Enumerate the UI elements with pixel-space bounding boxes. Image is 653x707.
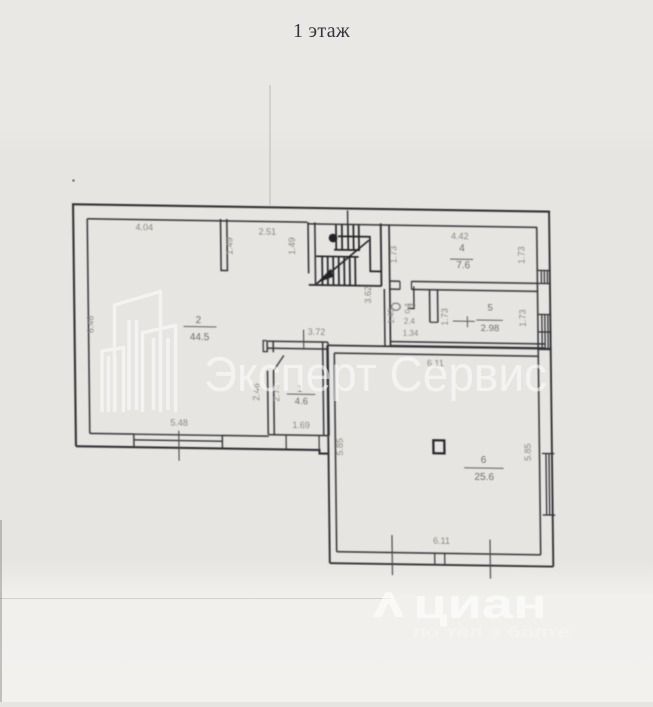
svg-text:4.04: 4.04: [135, 222, 153, 232]
svg-text:циан: циан: [413, 580, 547, 627]
svg-text:6.11: 6.11: [433, 536, 450, 546]
svg-text:1.49: 1.49: [224, 237, 234, 255]
svg-text:1.73: 1.73: [388, 246, 398, 264]
svg-text:по тел з болте: по тел з болте: [413, 624, 571, 641]
svg-text:2.51: 2.51: [259, 227, 277, 237]
svg-text:1.49: 1.49: [287, 237, 297, 255]
svg-text:5: 5: [488, 303, 493, 314]
svg-text:25.6: 25.6: [474, 472, 494, 483]
svg-text:2.98: 2.98: [481, 323, 500, 334]
svg-text:1.73: 1.73: [518, 309, 528, 327]
svg-text:4: 4: [459, 243, 465, 254]
svg-text:1.73: 1.73: [516, 246, 526, 264]
svg-text:2.4: 2.4: [404, 317, 416, 326]
svg-text:6.46: 6.46: [85, 316, 95, 334]
svg-text:1.73: 1.73: [440, 308, 450, 326]
svg-text:3.72: 3.72: [308, 327, 326, 337]
svg-text:5.85: 5.85: [523, 443, 533, 461]
svg-text:4.42: 4.42: [451, 231, 469, 241]
svg-text:1.69: 1.69: [292, 420, 310, 430]
svg-text:7.6: 7.6: [456, 260, 470, 271]
svg-text:Эксперт Сервис: Эксперт Сервис: [204, 348, 547, 402]
svg-text:2: 2: [196, 315, 202, 326]
svg-text:5.48: 5.48: [170, 418, 188, 428]
svg-text:44.5: 44.5: [190, 332, 210, 343]
svg-text:1.34: 1.34: [403, 329, 419, 338]
svg-text:6: 6: [481, 455, 487, 466]
svg-text:1.43: 1.43: [387, 308, 396, 324]
svg-text:5.85: 5.85: [335, 438, 345, 456]
svg-text:3: 3: [408, 303, 417, 308]
svg-text:3.62: 3.62: [363, 286, 373, 304]
